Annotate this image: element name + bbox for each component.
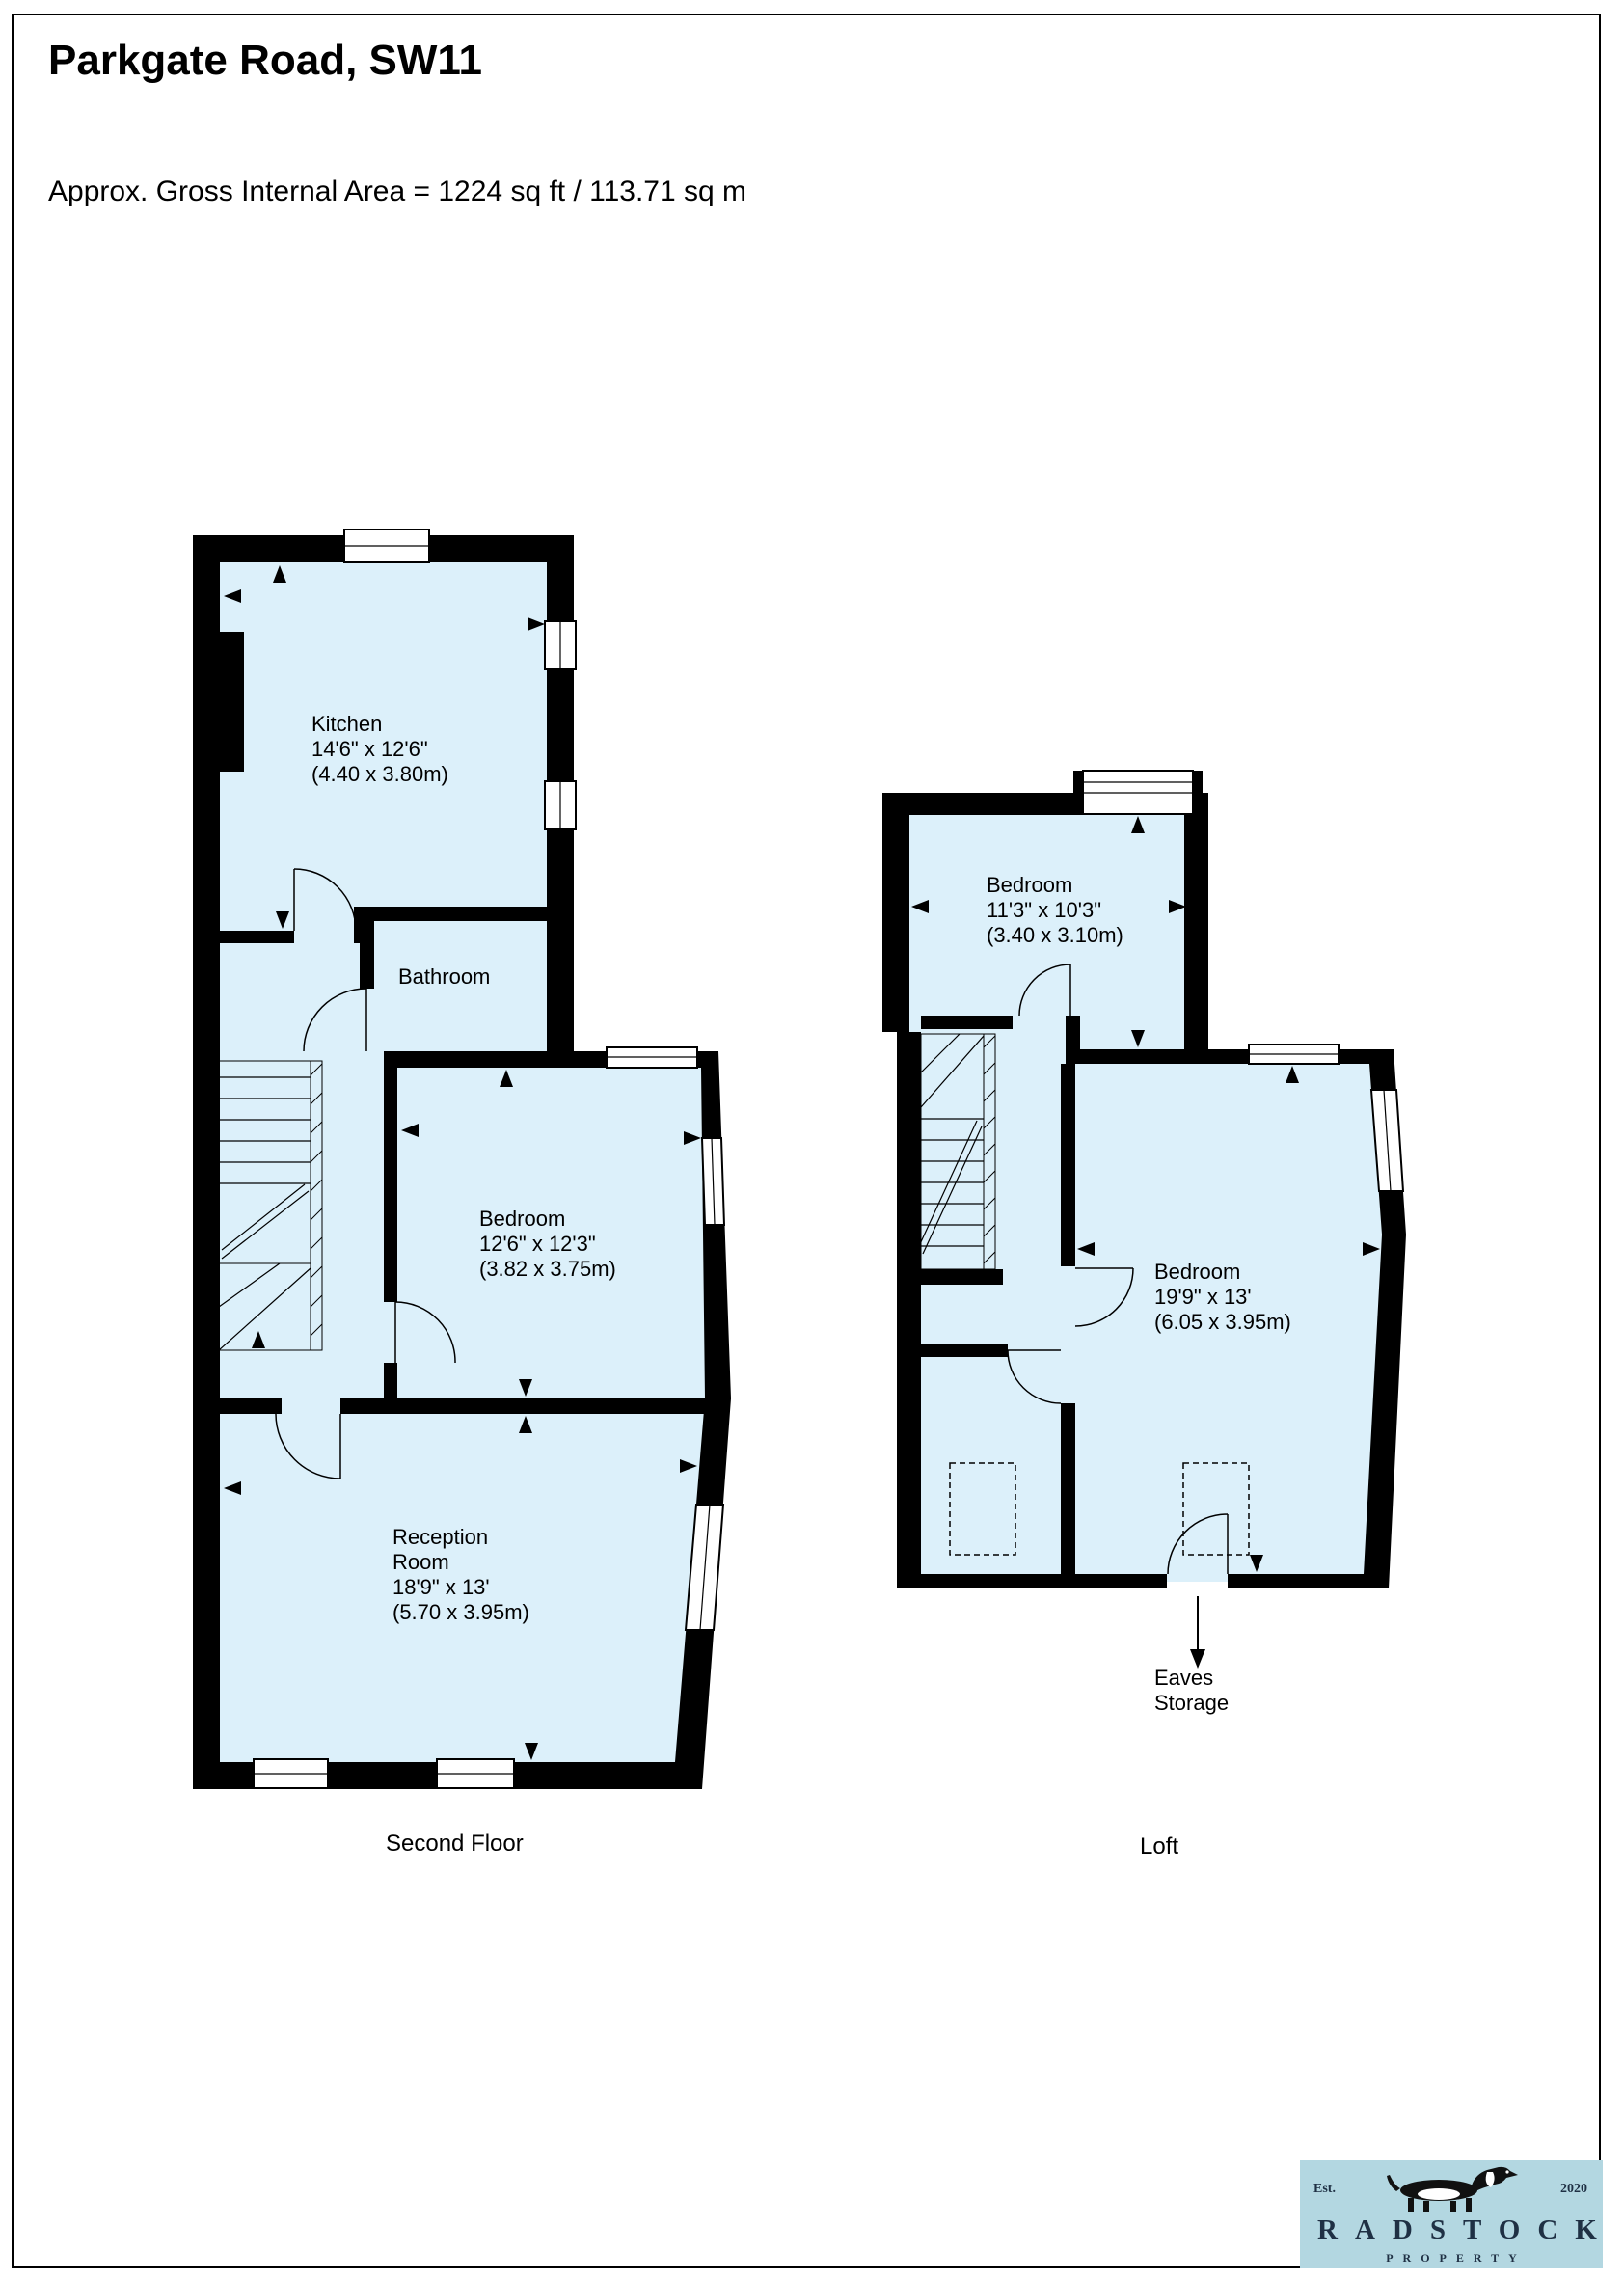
loft-plan (873, 757, 1418, 1688)
kitchen-name: Kitchen (311, 712, 448, 737)
page-title: Parkgate Road, SW11 (48, 37, 482, 85)
second-floor-caption: Second Floor (386, 1831, 524, 1858)
loft-bedroom-small-dims-m: (3.40 x 3.10m) (987, 923, 1123, 948)
loft-bedroom-small-dims-ft: 11'3" x 10'3" (987, 898, 1123, 923)
reception-name-line1: Reception (392, 1525, 529, 1550)
loft-bedroom-large-label: Bedroom 19'9" x 13' (6.05 x 3.95m) (1154, 1260, 1291, 1335)
loft-bedroom-small-name: Bedroom (987, 873, 1123, 898)
bedroom2f-name: Bedroom (479, 1207, 616, 1232)
loft-bedroom-large-name: Bedroom (1154, 1260, 1291, 1285)
eaves-line1: Eaves (1154, 1666, 1229, 1691)
radstock-logo: Est. 2020 RADSTOCK PROPERTY (1300, 2160, 1603, 2268)
reception-name-line2: Room (392, 1550, 529, 1575)
reception-dims-m: (5.70 x 3.95m) (392, 1600, 529, 1625)
eaves-storage-label: Eaves Storage (1154, 1666, 1229, 1716)
reception-dims-ft: 18'9" x 13' (392, 1575, 529, 1600)
bedroom2f-dims-m: (3.82 x 3.75m) (479, 1257, 616, 1282)
eaves-line2: Storage (1154, 1691, 1229, 1716)
kitchen-dims-m: (4.40 x 3.80m) (311, 762, 448, 787)
logo-tagline: PROPERTY (1300, 2251, 1603, 2266)
kitchen-dims-ft: 14'6" x 12'6" (311, 737, 448, 762)
bathroom-label: Bathroom (398, 964, 490, 990)
logo-year-label: 2020 (1560, 2182, 1587, 2197)
loft-caption: Loft (1140, 1833, 1178, 1860)
gross-internal-area: Approx. Gross Internal Area = 1224 sq ft… (48, 176, 746, 208)
loft-bedroom-small-label: Bedroom 11'3" x 10'3" (3.40 x 3.10m) (987, 873, 1123, 948)
bedroom2f-dims-ft: 12'6" x 12'3" (479, 1232, 616, 1257)
floorplan-page: Parkgate Road, SW11 Approx. Gross Intern… (0, 0, 1624, 2280)
logo-est-label: Est. (1313, 2182, 1336, 2197)
bathroom-name: Bathroom (398, 964, 490, 990)
logo-brand-name: RADSTOCK (1300, 2214, 1603, 2246)
dachshund-icon (1379, 2162, 1524, 2214)
loft-footprint (897, 804, 1394, 1582)
kitchen-label: Kitchen 14'6" x 12'6" (4.40 x 3.80m) (311, 712, 448, 787)
eaves-storage-arrow-icon (1190, 1596, 1205, 1669)
loft-bedroom-large-dims-ft: 19'9" x 13' (1154, 1285, 1291, 1310)
bedroom2f-label: Bedroom 12'6" x 12'3" (3.82 x 3.75m) (479, 1207, 616, 1282)
reception-label: Reception Room 18'9" x 13' (5.70 x 3.95m… (392, 1525, 529, 1625)
loft-bedroom-large-dims-m: (6.05 x 3.95m) (1154, 1310, 1291, 1335)
